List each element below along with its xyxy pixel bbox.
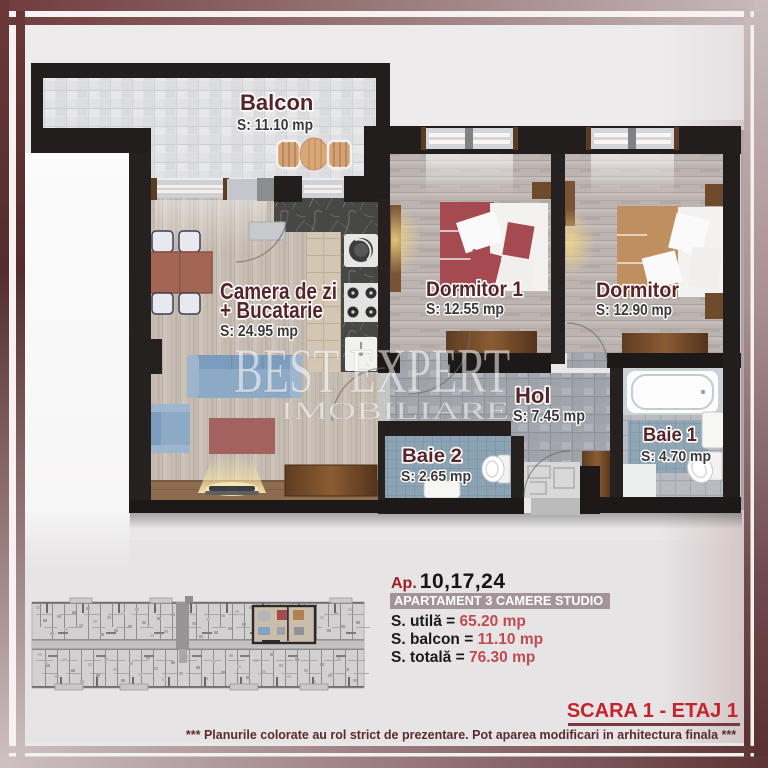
svg-text:S: 7.45 mp: S: 7.45 mp: [513, 408, 585, 425]
svg-text:S: 2.65 mp: S: 2.65 mp: [401, 468, 471, 485]
svg-text:Baie 1: Baie 1: [643, 425, 697, 446]
svg-text:S: 12.90 mp: S: 12.90 mp: [596, 302, 672, 319]
svg-text:Dormitor 1: Dormitor 1: [426, 278, 523, 301]
svg-text:Balcon: Balcon: [240, 90, 313, 115]
svg-text:S: 12.55 mp: S: 12.55 mp: [426, 301, 504, 318]
svg-text:BEST EXPERT: BEST EXPERT: [234, 336, 510, 406]
svg-text:S: 24.95 mp: S: 24.95 mp: [220, 323, 298, 340]
svg-text:S: 4.70 mp: S: 4.70 mp: [641, 448, 711, 465]
svg-text:Hol: Hol: [515, 383, 550, 408]
svg-text:+ Bucatarie: + Bucatarie: [220, 297, 323, 323]
svg-text:Dormitor: Dormitor: [596, 279, 679, 302]
svg-text:S: 11.10 mp: S: 11.10 mp: [237, 117, 313, 134]
svg-text:Baie 2: Baie 2: [402, 446, 462, 467]
svg-text:IMOBILIARE: IMOBILIARE: [281, 398, 510, 425]
